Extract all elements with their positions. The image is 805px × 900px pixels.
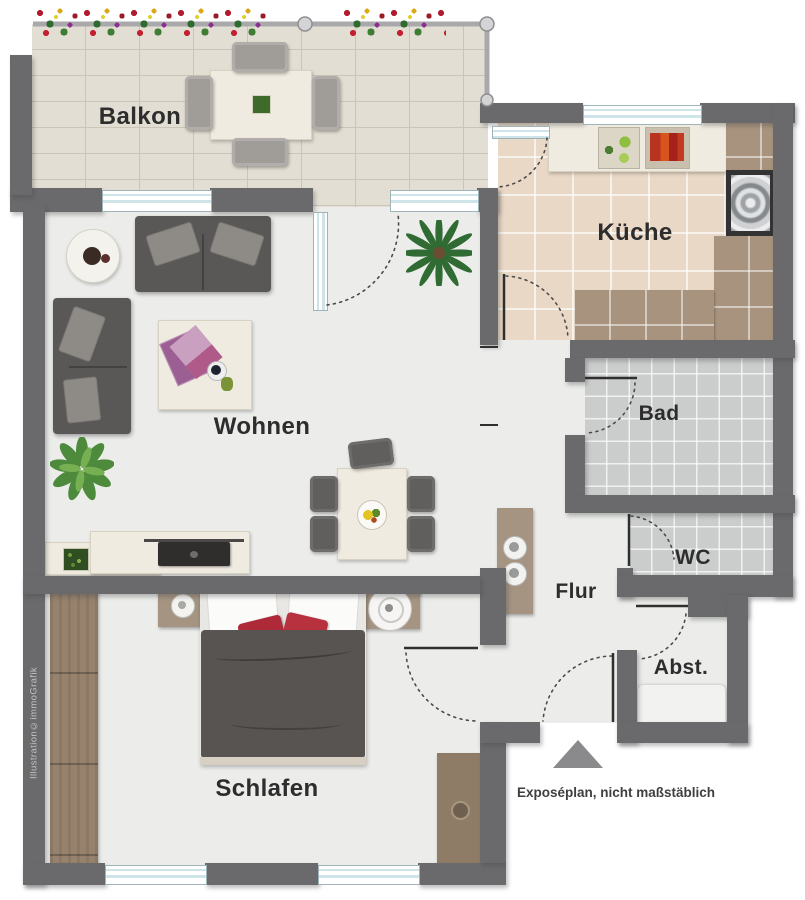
kitchen-counter-bottom (575, 290, 714, 344)
room-label-kueche: Küche (597, 219, 672, 247)
duvet-fold (231, 718, 341, 730)
sofa-seam (202, 234, 204, 290)
bed (200, 585, 366, 765)
scale-note: Exposéplan, nicht maßstäblich (517, 785, 715, 800)
kitchen-counter-right-top (726, 122, 775, 170)
room-label-wohnen: Wohnen (214, 413, 311, 441)
wall (727, 595, 748, 743)
cutting-board-green (598, 127, 640, 169)
cup-coffee (211, 365, 221, 375)
flower-box-right (340, 4, 446, 40)
side-table-round (66, 229, 120, 283)
tv-soundbar (144, 539, 244, 542)
wall (480, 103, 583, 123)
sofa-seam (69, 366, 127, 368)
tv (158, 542, 230, 566)
dining-chair-right-1 (407, 476, 435, 512)
sofa-cushion (209, 221, 265, 266)
room-label-balkon: Balkon (99, 103, 181, 131)
flower-box-left (33, 4, 268, 40)
wall (617, 722, 748, 743)
balcony-door-leaf (313, 212, 328, 311)
wall (210, 188, 313, 212)
stool-center (509, 542, 519, 552)
wall (418, 863, 506, 885)
room-label-bad: Bad (639, 402, 680, 426)
stool-center (509, 568, 519, 578)
cup-small (101, 254, 110, 263)
wall (480, 722, 506, 863)
balcony-chair-right (312, 76, 340, 130)
bathroom-floor (585, 352, 775, 498)
sofa-cushion (63, 376, 101, 423)
illustrator-credit: Illustration©immoGrafik (23, 580, 45, 865)
duvet (201, 630, 365, 757)
wall (10, 55, 32, 195)
dining-chair-left-2 (310, 516, 338, 552)
wall (565, 358, 585, 382)
room-label-schlafen: Schlafen (215, 775, 318, 803)
palm-plant-icon (406, 220, 472, 286)
balcony-table-planter (252, 95, 271, 114)
fan-center (385, 604, 393, 612)
wall (570, 340, 795, 358)
potted-plant-icon (50, 437, 114, 501)
wall (480, 188, 498, 345)
wall (565, 435, 585, 497)
bedroom-wardrobe (50, 583, 98, 863)
wall (205, 863, 318, 885)
wall (23, 863, 105, 885)
balcony-chair-left (185, 76, 213, 130)
window (102, 190, 212, 212)
sofa-cushion (145, 221, 201, 266)
dining-chair-right-2 (407, 516, 435, 552)
window (318, 865, 420, 885)
wall (23, 576, 480, 594)
window (390, 190, 479, 212)
entrance-arrow-icon (553, 740, 603, 768)
kitchen-counter-right (714, 236, 775, 344)
kitchen-oven (726, 170, 775, 236)
lamp-center (178, 601, 186, 609)
room-label-abst: Abst. (654, 656, 709, 680)
cup (83, 247, 101, 265)
wall (480, 568, 506, 645)
sofa-left (53, 298, 131, 434)
sofa-top (135, 216, 271, 292)
floor-plan: Balkon Küche Wohnen Bad WC Flur Abst. Sc… (0, 0, 805, 900)
decor-plant-small (221, 377, 233, 391)
dining-chair-left-1 (310, 476, 338, 512)
bedroom-cabinet (437, 753, 480, 863)
sofa-cushion (58, 306, 106, 363)
coffee-table (158, 320, 252, 410)
dining-table (337, 468, 407, 560)
room-label-wc: WC (675, 546, 711, 570)
cabinet-handle (451, 801, 470, 820)
fruit-bowl (357, 500, 387, 530)
tv-mount (190, 551, 198, 558)
wall (565, 495, 795, 513)
wc-floor (630, 505, 773, 583)
kitchen-door-leaf (492, 126, 550, 139)
room-label-flur: Flur (555, 580, 596, 604)
window (105, 865, 207, 885)
duvet-fold (215, 644, 351, 663)
cutting-board-red (645, 127, 690, 169)
wall (480, 722, 540, 743)
window (583, 105, 702, 125)
bed-footboard (200, 757, 366, 765)
balcony-chair-bottom (232, 138, 288, 166)
dining-chair-top (348, 437, 395, 469)
wall (617, 575, 793, 597)
balcony-chair-top (232, 42, 288, 72)
planter-box (63, 548, 89, 571)
oven-door (731, 175, 770, 231)
